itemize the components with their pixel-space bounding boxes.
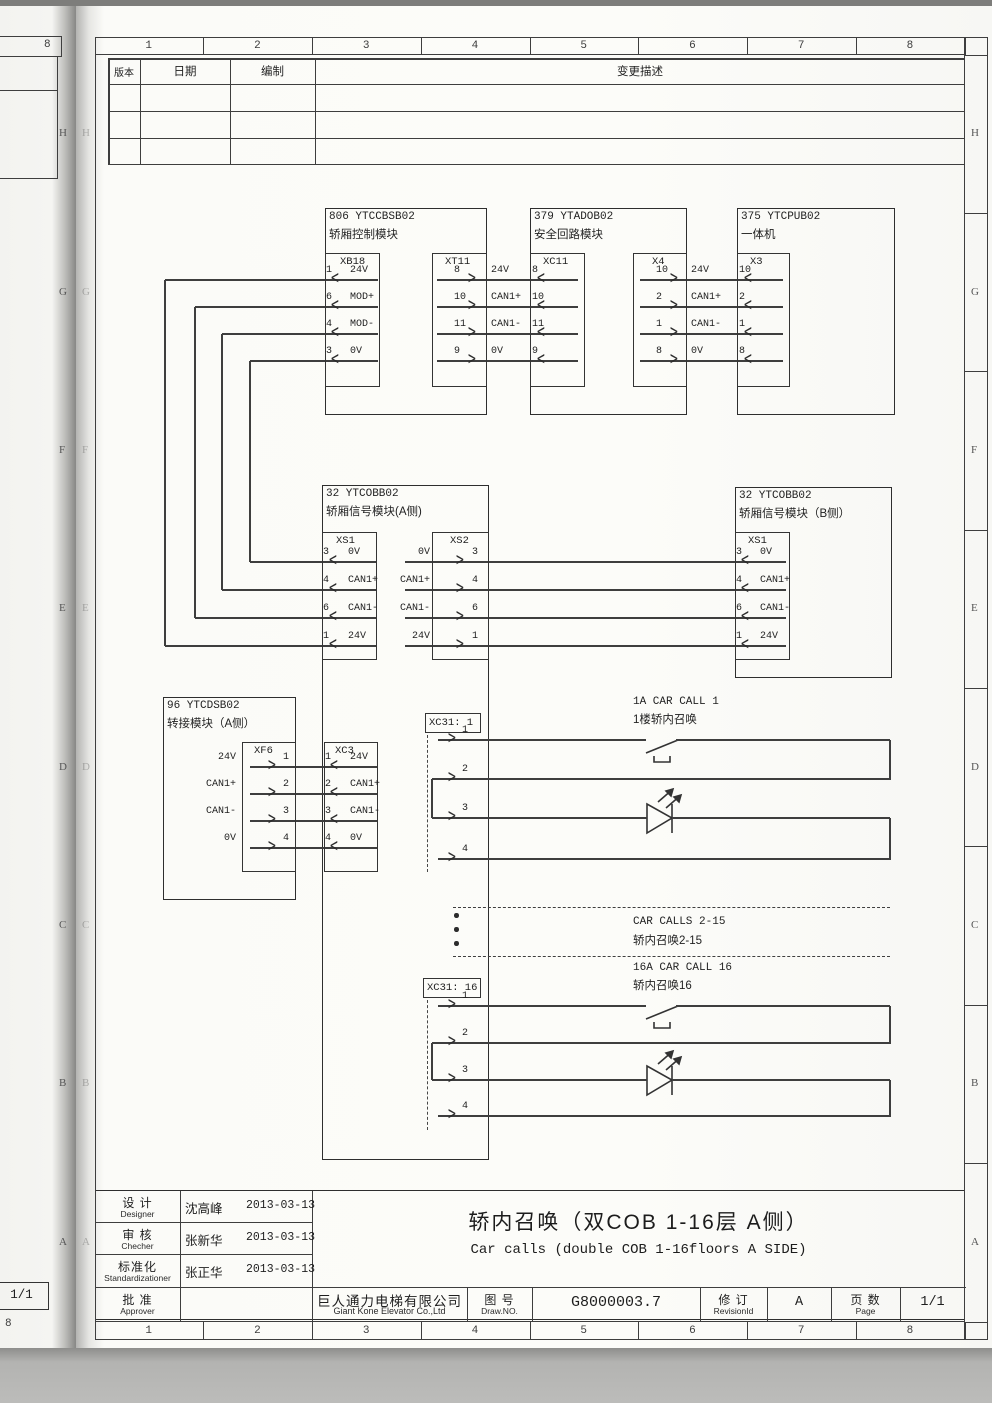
pin-arrow-left: < (537, 350, 545, 368)
pin-arrow-right: > (670, 269, 678, 287)
grid-number-top: 5 (580, 40, 587, 52)
pin-signal-label: CAN1+ (348, 575, 378, 586)
frame-tick (95, 37, 96, 55)
pin-arrow-right: > (468, 269, 476, 287)
pin-signal-label: 24V (380, 631, 430, 642)
rev-table-line (108, 138, 965, 139)
drawing-number-value: G8000003.7 (532, 1294, 700, 1311)
title-block-line (96, 1222, 313, 1223)
designer-date: 2013-03-13 (246, 1199, 315, 1212)
pin-arrow-left: < (330, 783, 338, 801)
pin-arrow-right: > (448, 768, 456, 786)
pin-number: 3 (462, 803, 468, 814)
rev-table-line (108, 84, 965, 85)
underlay-page-box: 1/1 (0, 1282, 49, 1310)
module-code: 375 YTCPUB02 (741, 211, 820, 223)
frame-tick (421, 37, 422, 55)
net-label: CAN1- (691, 319, 721, 330)
net-label: CAN1- (491, 319, 521, 330)
pin-signal-label: 0V (350, 346, 362, 357)
designer-label-en: Designer (95, 1209, 180, 1219)
pin-arrow-left: < (329, 579, 337, 597)
pin-arrow-right: > (268, 810, 276, 828)
grid-number-bottom: 4 (472, 1325, 479, 1337)
connector-label: XS1 (748, 535, 767, 547)
frame-tick (965, 530, 988, 531)
wire (194, 307, 196, 618)
wire (431, 779, 433, 818)
checker-label-en: Checher (95, 1241, 180, 1251)
net-label: 0V (691, 346, 703, 357)
grid-number-top: 1 (145, 40, 152, 52)
revision-value: A (767, 1295, 831, 1310)
pin-signal-label: CAN1- (348, 603, 378, 614)
pin-arrow-left: < (741, 551, 749, 569)
wire (676, 739, 890, 741)
grid-letter-left: C (82, 919, 89, 931)
pin-number: 1 (472, 631, 478, 642)
pin-arrow-left: < (741, 607, 749, 625)
frame-tick (638, 1322, 639, 1340)
pin-signal-label: CAN1+ (186, 779, 236, 790)
rev-table-line (108, 111, 965, 112)
pin-arrow-left: < (537, 269, 545, 287)
frame-tick (203, 1322, 204, 1340)
module-name: 安全回路模块 (534, 226, 603, 242)
pin-signal-label: 24V (350, 752, 368, 763)
ellipsis-dot (454, 927, 459, 932)
pin-arrow-right: > (448, 995, 456, 1013)
pin-signal-label: 0V (348, 547, 360, 558)
module-name: 轿厢信号模块(A侧) (326, 503, 422, 519)
underlay-grid-letter: A (59, 1236, 67, 1248)
company-name-en: Giant Kone Elevator Co.,Ltd (312, 1306, 467, 1316)
pin-arrow-right: > (448, 1069, 456, 1087)
net-label: CAN1+ (491, 292, 521, 303)
rev-col-date: 日期 (140, 63, 230, 79)
frame-tick (965, 1322, 966, 1340)
pin-signal-label: 0V (350, 833, 362, 844)
frame-line (95, 1339, 988, 1340)
standardization-name: 张正华 (185, 1262, 223, 1281)
grid-letter-left: E (82, 602, 89, 614)
pin-arrow-right: > (268, 756, 276, 774)
underlay-grid-letter: F (59, 444, 65, 456)
pin-arrow-left: < (537, 296, 545, 314)
grid-number-bottom: 2 (254, 1325, 261, 1337)
frame-tick (312, 37, 313, 55)
grid-number-bottom: 3 (363, 1325, 370, 1337)
frame-tick (856, 37, 857, 55)
frame-tick (203, 37, 204, 55)
pin-arrow-left: < (329, 635, 337, 653)
drawing-title-en: Car calls (double COB 1-16floors A SIDE) (312, 1242, 965, 1258)
pin-number: 2 (462, 764, 468, 775)
car-call-1-label-zh: 1楼轿内召唤 (633, 711, 697, 727)
grid-number-bottom: 7 (798, 1325, 805, 1337)
drawing-number-label-en: Draw.NO. (467, 1306, 532, 1316)
frame-tick (747, 37, 748, 55)
pin-arrow-left: < (331, 296, 339, 314)
standardization-label-en: Standardizationer (95, 1273, 180, 1283)
pin-signal-label: CAN1- (350, 806, 380, 817)
pin-signal-label: CAN1- (186, 806, 236, 817)
car-call-1-label-en: 1A CAR CALL 1 (633, 696, 719, 708)
pin-arrow-right: > (448, 807, 456, 825)
frame-line (95, 37, 988, 38)
frame-tick (856, 1322, 857, 1340)
grid-letter-right: D (971, 761, 979, 773)
grid-letter-right: B (971, 1077, 978, 1089)
pin-number: 4 (283, 833, 289, 844)
approver-label-en: Approver (95, 1306, 180, 1316)
wire (676, 1005, 890, 1007)
pin-number: 2 (283, 779, 289, 790)
pin-arrow-right: > (670, 323, 678, 341)
underlay-grid-number: 8 (5, 1318, 12, 1330)
scanned-schematic-sheet: 8 1/1 8 版本 日期 编制 变更描述 806 YTCCBSB02 轿厢控制… (0, 0, 992, 1403)
frame-line (95, 37, 96, 1340)
pin-arrow-left: < (331, 323, 339, 341)
connector-label: XS1 (336, 535, 355, 547)
underlay-line (0, 36, 62, 37)
frame-tick (965, 688, 988, 689)
frame-tick (965, 37, 966, 55)
underlay-grid-letter: B (59, 1077, 66, 1089)
module-code: 806 YTCCBSB02 (329, 211, 415, 223)
pin-signal-label: 24V (350, 265, 368, 276)
wire (164, 280, 166, 646)
wire (889, 1006, 891, 1043)
drawing-title-zh: 轿内召唤（双COB 1-16层 A侧） (312, 1206, 965, 1236)
underlay-grid-letter: E (59, 602, 66, 614)
module-code: 96 YTCDSB02 (167, 700, 240, 712)
pin-signal-label: 24V (186, 752, 236, 763)
pin-arrow-left: < (537, 323, 545, 341)
pin-number: 1 (283, 752, 289, 763)
pin-number: 2 (462, 1028, 468, 1039)
module-code: 32 YTCOBB02 (326, 488, 399, 500)
grid-number-bottom: 5 (580, 1325, 587, 1337)
wire (432, 1042, 891, 1044)
title-block-line (96, 1254, 313, 1255)
underlay-grid-letter: D (59, 761, 67, 773)
rev-table-line (108, 164, 965, 166)
underlay-line (57, 57, 58, 179)
underlay-line (0, 178, 58, 179)
car-call-16-label-en: 16A CAR CALL 16 (633, 962, 732, 974)
pin-signal-label: 24V (348, 631, 366, 642)
pin-arrow-right: > (456, 635, 464, 653)
grid-number-top: 7 (798, 40, 805, 52)
grid-letter-right: C (971, 919, 978, 931)
wire (672, 817, 890, 819)
pin-signal-label: 0V (380, 547, 430, 558)
module-code: 379 YTADOB02 (534, 211, 613, 223)
frame-tick (95, 1322, 96, 1340)
pin-arrow-left: < (744, 350, 752, 368)
grid-letter-left: G (82, 286, 90, 298)
pin-arrow-right: > (268, 837, 276, 855)
wire (431, 1043, 433, 1080)
module-name: 转接模块（A侧） (167, 715, 255, 731)
net-label: CAN1+ (691, 292, 721, 303)
checker-name: 张新华 (185, 1230, 223, 1249)
grid-number-bottom: 8 (907, 1325, 914, 1337)
wire (249, 361, 251, 562)
pin-arrow-right: > (456, 551, 464, 569)
pin-signal-label: 0V (760, 547, 772, 558)
pin-number: 4 (462, 844, 468, 855)
frame-tick (965, 846, 988, 847)
pin-arrow-right: > (456, 579, 464, 597)
frame-tick (530, 37, 531, 55)
wire (438, 1115, 891, 1117)
frame-tick (965, 213, 988, 214)
title-block-line (180, 1191, 181, 1321)
underlying-page-edge (0, 6, 76, 1348)
pin-arrow-right: > (448, 1105, 456, 1123)
grid-number-top: 3 (363, 40, 370, 52)
underlay-grid-letter: C (59, 919, 66, 931)
pin-arrow-right: > (448, 729, 456, 747)
frame-tick (312, 1322, 313, 1340)
frame-tick (965, 371, 988, 372)
grid-number-top: 6 (689, 40, 696, 52)
pin-signal-label: CAN1+ (380, 575, 430, 586)
pin-number: 9 (454, 346, 460, 357)
pin-arrow-left: < (741, 579, 749, 597)
scan-bottom-shadow (0, 1348, 992, 1403)
module-name: 一体机 (741, 226, 776, 242)
pin-arrow-right: > (448, 848, 456, 866)
rev-table-line (108, 58, 965, 60)
pin-number: 2 (656, 292, 662, 303)
led-symbol (640, 780, 696, 836)
module-name: 轿厢控制模块 (329, 226, 398, 242)
pin-signal-label: CAN1- (380, 603, 430, 614)
pin-arrow-left: < (329, 551, 337, 569)
frame-tick (965, 1163, 988, 1164)
underlay-line (0, 90, 58, 91)
grid-letter-right: F (971, 444, 977, 456)
pin-signal-label: MOD+ (350, 292, 374, 303)
car-calls-2-15-label-zh: 轿内召唤2-15 (633, 932, 702, 948)
wire (432, 778, 891, 780)
rev-col-description: 变更描述 (315, 63, 965, 79)
checker-date: 2013-03-13 (246, 1231, 315, 1244)
standardization-date: 2013-03-13 (246, 1263, 315, 1276)
underlay-grid-letter: G (59, 286, 67, 298)
revision-label-en: RevisionId (700, 1306, 767, 1316)
pin-arrow-left: < (744, 323, 752, 341)
title-block-line (96, 1287, 966, 1288)
rev-col-version: 版本 (108, 64, 140, 79)
underlay-grid-number: 8 (44, 39, 51, 51)
wire (438, 1005, 646, 1007)
pin-arrow-right: > (670, 296, 678, 314)
wire (889, 740, 891, 779)
pin-signal-label: 0V (186, 833, 236, 844)
module-name: 轿厢信号模块（B侧） (739, 505, 850, 521)
led-symbol (640, 1042, 696, 1098)
page-label-en: Page (831, 1306, 900, 1316)
wire (221, 334, 223, 590)
car-call-16-label-zh: 轿内召唤16 (633, 977, 692, 993)
pin-number: 3 (472, 547, 478, 558)
frame-tick (965, 1005, 988, 1006)
ellipsis-dot (454, 913, 459, 918)
wire (889, 1080, 891, 1116)
module-code: 32 YTCOBB02 (739, 490, 812, 502)
pin-signal-label: CAN1+ (760, 575, 790, 586)
grid-number-top: 2 (254, 40, 261, 52)
grid-letter-right: H (971, 127, 979, 139)
grid-number-bottom: 6 (689, 1325, 696, 1337)
net-label: 24V (691, 265, 709, 276)
page-value: 1/1 (900, 1295, 965, 1310)
pin-arrow-right: > (268, 783, 276, 801)
grid-letter-left: B (82, 1077, 89, 1089)
pin-signal-label: 24V (760, 631, 778, 642)
frame-tick (965, 1322, 988, 1323)
pin-arrow-right: > (456, 607, 464, 625)
grid-letter-left: F (82, 444, 88, 456)
dashed-wire (453, 956, 890, 957)
grid-number-bottom: 1 (145, 1325, 152, 1337)
pin-number: 8 (454, 265, 460, 276)
pin-signal-label: CAN1- (760, 603, 790, 614)
pin-number: 4 (462, 1101, 468, 1112)
grid-letter-left: D (82, 761, 90, 773)
frame-tick (747, 1322, 748, 1340)
pin-number: 8 (656, 346, 662, 357)
rev-col-author: 编制 (230, 63, 315, 79)
car-calls-2-15-label-en: CAR CALLS 2-15 (633, 916, 725, 928)
pin-number: 6 (472, 603, 478, 614)
pin-arrow-left: < (331, 350, 339, 368)
pin-number: 1 (462, 725, 468, 736)
pin-number: 1 (462, 991, 468, 1002)
pin-arrow-right: > (670, 350, 678, 368)
net-label: 0V (491, 346, 503, 357)
wire (672, 1079, 890, 1081)
pin-number: 10 (454, 292, 466, 303)
grid-number-top: 8 (907, 40, 914, 52)
pin-arrow-left: < (329, 607, 337, 625)
connector-label: XS2 (450, 535, 469, 547)
pin-number: 3 (283, 806, 289, 817)
dashed-wire (453, 907, 890, 908)
pin-arrow-left: < (744, 296, 752, 314)
pin-arrow-left: < (741, 635, 749, 653)
wire (438, 858, 891, 860)
pin-arrow-left: < (330, 810, 338, 828)
pin-arrow-left: < (330, 756, 338, 774)
connector-label: XC31: 16 (427, 982, 477, 994)
connector-bracket (427, 1000, 428, 1130)
underlay-grid-letter: H (59, 127, 67, 139)
wire (432, 1079, 647, 1081)
frame-tick (638, 37, 639, 55)
pin-arrow-right: > (468, 296, 476, 314)
underlay-line (61, 36, 62, 57)
grid-letter-right: E (971, 602, 978, 614)
pin-arrow-right: > (448, 1032, 456, 1050)
pin-arrow-left: < (331, 269, 339, 287)
net-label: 24V (491, 265, 509, 276)
pin-number: 1 (656, 319, 662, 330)
underlay-line (0, 56, 62, 57)
grid-letter-left: H (82, 127, 90, 139)
ellipsis-dot (454, 941, 459, 946)
pin-number: 11 (454, 319, 466, 330)
frame-tick (965, 55, 988, 56)
grid-letter-right: G (971, 286, 979, 298)
pin-arrow-left: < (330, 837, 338, 855)
frame-tick (530, 1322, 531, 1340)
wire (889, 818, 891, 859)
pin-arrow-right: > (468, 323, 476, 341)
pin-number: 3 (462, 1065, 468, 1076)
connector-label: X3 (750, 256, 763, 268)
grid-letter-left: A (82, 1236, 90, 1248)
wire (438, 739, 646, 741)
pin-number: 4 (472, 575, 478, 586)
wire (432, 817, 647, 819)
pin-signal-label: CAN1+ (350, 779, 380, 790)
pin-signal-label: MOD- (350, 319, 374, 330)
pin-arrow-left: < (744, 269, 752, 287)
connector-label: XC11 (543, 256, 568, 268)
grid-number-top: 4 (472, 40, 479, 52)
designer-name: 沈高峰 (185, 1198, 223, 1217)
pin-arrow-right: > (468, 350, 476, 368)
frame-tick (421, 1322, 422, 1340)
pin-number: 10 (656, 265, 668, 276)
connector-bracket (427, 735, 428, 872)
grid-letter-right: A (971, 1236, 979, 1248)
